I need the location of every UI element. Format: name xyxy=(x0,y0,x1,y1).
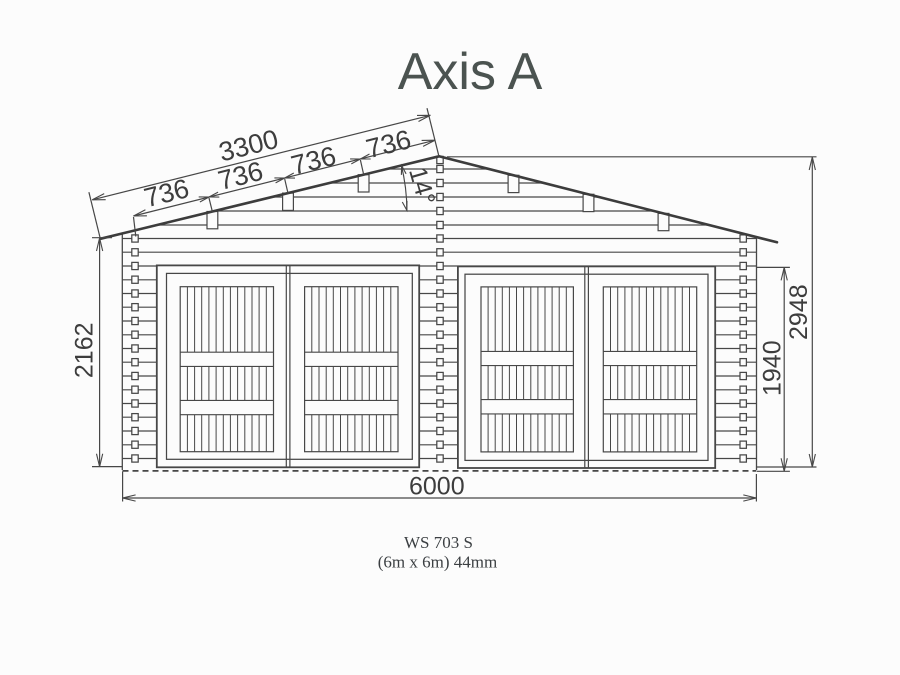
svg-text:2162: 2162 xyxy=(70,322,98,378)
svg-text:1940: 1940 xyxy=(758,340,786,396)
svg-text:6000: 6000 xyxy=(409,473,465,501)
svg-text:(6m x 6m) 44mm: (6m x 6m) 44mm xyxy=(378,552,497,571)
svg-text:2948: 2948 xyxy=(785,284,813,340)
svg-text:Axis A: Axis A xyxy=(398,43,543,101)
svg-text:WS 703 S: WS 703 S xyxy=(404,533,473,552)
